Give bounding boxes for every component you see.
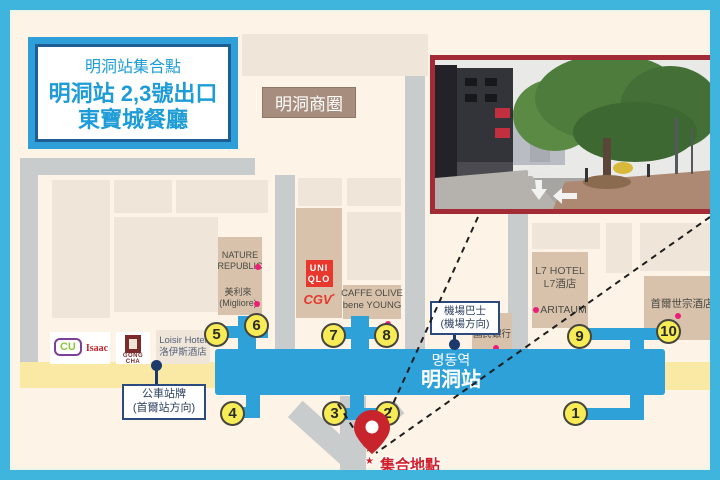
uniqlo-logo: UNI QLO [306, 260, 333, 287]
store-cu-isaac-logos: CU Isaac [53, 338, 109, 356]
uniqlo-logo-line: QLO [308, 274, 331, 285]
isaac-label: Isaac [86, 343, 108, 354]
airport-bus-dot [449, 339, 460, 350]
store-dot-icon [675, 313, 681, 319]
store-label: CAFFE OLIVE [341, 288, 403, 299]
exit-2: 2 [375, 401, 400, 426]
building-block [347, 178, 401, 206]
store-loisir-hotel: Loisir Hotel 洛伊斯酒店 [156, 335, 210, 359]
uniqlo-logo-line: UNI [310, 263, 329, 274]
exit-9: 9 [567, 324, 592, 349]
bus-stop-label-line: (首爾站方向) [133, 402, 195, 414]
building-block [114, 217, 218, 312]
gongcha-icon [125, 335, 141, 353]
building-block [114, 180, 172, 213]
building-block [176, 180, 268, 213]
store-label: L7酒店 [544, 278, 577, 290]
exit-4: 4 [220, 401, 245, 426]
bus-stop-label: 公車站牌 (首爾站方向) [122, 384, 206, 420]
street-photo [430, 55, 719, 214]
street-photo-art [435, 60, 714, 209]
exit-10: 10 [656, 319, 681, 344]
store-label: L7 HOTEL [535, 265, 585, 277]
store-sejong-hotel: 首爾世宗酒店 [642, 298, 720, 311]
building-block [52, 180, 110, 318]
store-l7-hotel: L7 HOTEL L7酒店 [530, 265, 590, 291]
exit-connector [350, 394, 364, 411]
store-aritaum: ARITAUM [528, 304, 592, 317]
exit-connector [630, 394, 644, 420]
title-line-2: 東寶城餐廳 [78, 107, 188, 133]
meeting-star-icon: ★ [365, 456, 374, 467]
store-label: ARITAUM [540, 304, 586, 316]
gongcha-label: GONG CHA [116, 353, 150, 365]
area-label-myeongdong: 明洞商圈 [262, 87, 356, 118]
station-name: 명동역 明洞站 [408, 351, 494, 391]
store-dot-icon [533, 307, 539, 313]
road-yellow-right [665, 362, 720, 390]
airport-bus-label-line: 機場巴士 [444, 305, 486, 317]
store-dot-icon [255, 264, 261, 270]
road-top-horizontal [20, 158, 255, 175]
store-label: (Migliore) [219, 298, 257, 308]
meeting-point-label: 集合地點 [380, 454, 440, 475]
bus-stop-dot [151, 360, 162, 371]
exit-7: 7 [321, 323, 346, 348]
title-line-1: 明洞站 2,3號出口 [49, 81, 218, 107]
store-uniqlo-cgv: UNI QLO CGV* [296, 260, 342, 307]
store-gongcha-logo: GONG CHA [116, 335, 150, 365]
road-mid-vertical-2 [405, 70, 425, 350]
station-name-chinese: 明洞站 [408, 369, 494, 391]
store-caffe-olive: CAFFE OLIVE bene YOUNG [340, 288, 404, 312]
building-block [640, 223, 720, 271]
building-block [298, 178, 342, 206]
exit-3: 3 [322, 401, 347, 426]
building-block [347, 212, 401, 280]
title-tag: 明洞站集合點 [85, 53, 181, 77]
road-left-vertical [20, 158, 38, 364]
building-block [606, 223, 632, 273]
building-block [242, 34, 428, 76]
store-label: 美利來 [224, 287, 251, 297]
station-name-korean: 명동역 [408, 351, 494, 369]
exit-1: 1 [563, 401, 588, 426]
store-label: NATURE [222, 250, 258, 260]
airport-bus-label: 機場巴士 (機場方向) [430, 301, 500, 335]
store-label: 首爾世宗酒店 [651, 298, 714, 310]
bus-stop-label-line: 公車站牌 [142, 388, 186, 400]
road-mid-vertical-1 [275, 175, 295, 350]
cgv-logo: CGV* [296, 292, 342, 307]
airport-bus-label-line: (機場方向) [441, 318, 490, 330]
exit-8: 8 [374, 323, 399, 348]
cu-logo: CU [54, 338, 82, 356]
exit-connector [351, 316, 369, 350]
exit-5: 5 [204, 322, 229, 347]
store-label: Loisir Hotel [159, 335, 207, 346]
store-label: bene YOUNG [343, 300, 401, 311]
isaac-logo: Isaac [86, 338, 108, 356]
title-box: 明洞站集合點 明洞站 2,3號出口 東寶城餐廳 [28, 37, 238, 149]
myeongdong-meeting-map: NATURE REPUBLIC 美利來 (Migliore) UNI QLO C… [0, 0, 720, 480]
store-dot-icon [254, 301, 260, 307]
building-block [532, 223, 600, 249]
exit-6: 6 [244, 313, 269, 338]
store-label: 洛伊斯酒店 [159, 347, 207, 358]
